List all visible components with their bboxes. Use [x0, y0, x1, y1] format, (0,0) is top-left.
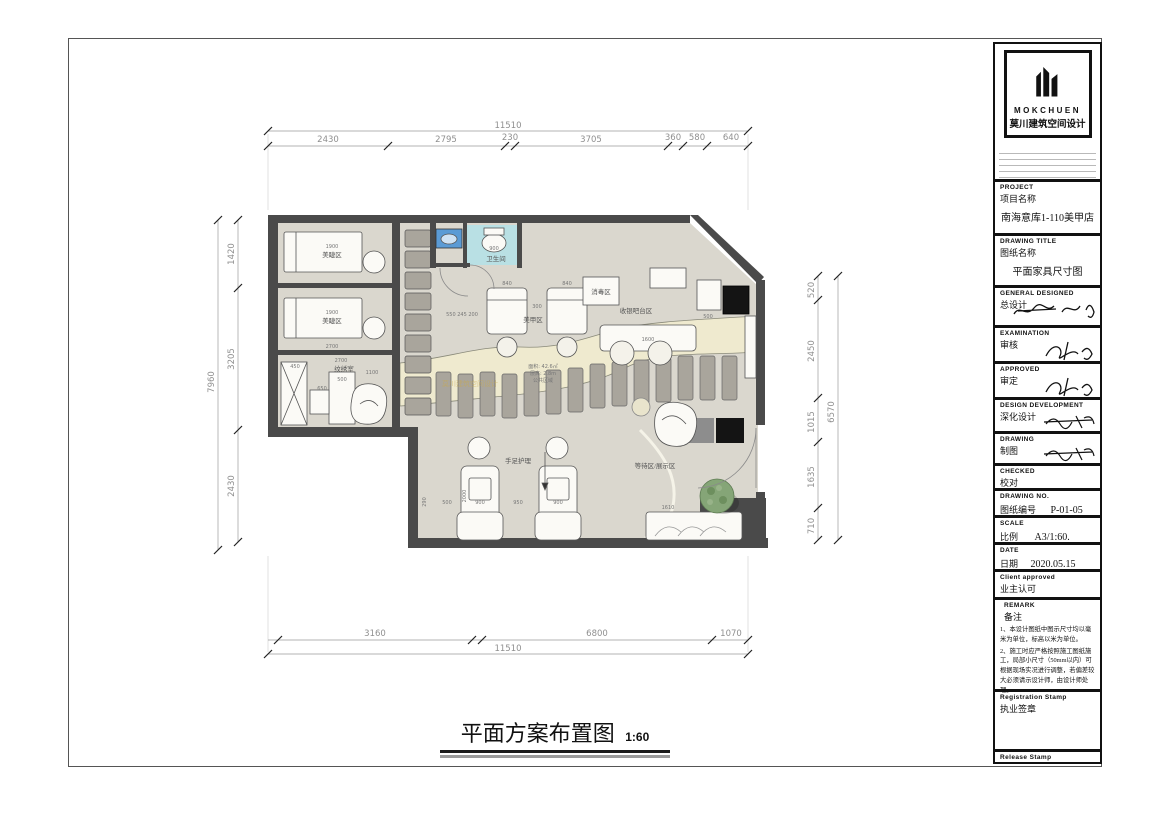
- cabinet-column: [405, 230, 431, 415]
- bed-dim: 1900: [326, 244, 339, 250]
- dim-bottom-seg: 6800: [586, 629, 608, 639]
- dim: 840: [562, 281, 572, 287]
- signature-scribble: [1010, 296, 1098, 322]
- section-title-cn: 校对: [1000, 476, 1095, 489]
- section-title-cn: 图纸名称: [1000, 246, 1095, 259]
- section-scale: SCALE 比例 A3/1:60.: [995, 518, 1100, 545]
- dim-bottom-seg: 3160: [364, 629, 386, 639]
- section-title-cn: 出图签章: [1000, 762, 1095, 764]
- dim-left-seg: 2430: [227, 475, 237, 497]
- room-label-tattoo: 纹绣室: [334, 364, 354, 373]
- section-drawing-no: DRAWING NO. 图纸编号 P-01-05: [995, 491, 1100, 518]
- section-title-en: CHECKED: [1000, 468, 1095, 475]
- dim: 900: [489, 246, 499, 252]
- section-registration-stamp: Registration Stamp 执业签章: [995, 692, 1100, 752]
- logo-brand: MOKCHUEN: [1007, 106, 1089, 115]
- dim-bottom-seg: 1070: [720, 629, 742, 639]
- room-label-bathroom: 卫生间: [486, 254, 506, 263]
- dim-top-seg: 640: [723, 133, 739, 143]
- room-label-sterilize: 消毒区: [591, 287, 611, 296]
- section-client-approved: Client approved 业主认可: [995, 572, 1100, 600]
- dim: 500: [337, 377, 347, 383]
- logo-brand-cn: 莫川建筑空间设计: [1007, 116, 1089, 130]
- watermark-text: 莫川建筑空间设计: [442, 379, 498, 388]
- dim-top-seg: 3705: [580, 135, 602, 145]
- scale-value: A3/1:60.: [1034, 532, 1069, 543]
- signature-scribble: [1038, 372, 1098, 400]
- room-label-lash1: 美睫区: [322, 250, 342, 259]
- dim: 2000: [462, 490, 468, 503]
- title-underline-dark: [440, 750, 670, 753]
- section-title-en: DESIGN DEVELOPMENT: [1000, 402, 1095, 409]
- dim-top-seg: 360: [665, 133, 681, 143]
- section-drawing: DRAWING 制图: [995, 434, 1100, 466]
- area-note: 面积: 42.6㎡: [528, 363, 557, 370]
- dim: 500: [442, 500, 452, 506]
- dim: 900: [475, 500, 485, 506]
- dim: 1610: [662, 505, 675, 511]
- dim-left-total: 7960: [207, 371, 217, 393]
- section-title-cn: 备注: [1004, 610, 1095, 623]
- plan-title: 平面方案布置图 1:60: [440, 716, 670, 758]
- room-dim: 2700: [335, 358, 348, 364]
- dim: 500: [703, 314, 713, 320]
- room-label-pedicure: 手足护理: [505, 456, 532, 465]
- dim-top-seg: 580: [689, 133, 705, 143]
- dim: 290: [422, 497, 428, 507]
- remark-note: 1、本设计图纸中图示尺寸均以毫米为单位，标高以米为单位。: [1000, 625, 1095, 645]
- dim-right-seg: 520: [807, 282, 817, 298]
- title-block: MOKCHUEN 莫川建筑空间设计 PROJECT 项目名称 南海意库1-110…: [993, 42, 1102, 764]
- section-general-designed: GENERAL DESIGNED 总设计: [995, 288, 1100, 328]
- section-title-cn: 项目名称: [1000, 192, 1095, 205]
- section-title-cn: 业主认可: [1000, 582, 1095, 595]
- dim-top-seg: 2430: [317, 135, 339, 145]
- dim-left-seg: 1420: [227, 243, 237, 265]
- plan-title-text: 平面方案布置图: [461, 716, 615, 748]
- room-label-nail: 美甲区: [523, 315, 543, 324]
- dim: 300: [532, 304, 542, 310]
- dim-right-seg: 1015: [807, 411, 817, 433]
- dim-right-seg: 710: [807, 518, 817, 534]
- logo-section: MOKCHUEN 莫川建筑空间设计: [995, 44, 1100, 142]
- stripes-section: [995, 142, 1100, 182]
- section-title-en: Client approved: [1000, 574, 1095, 581]
- room-label-cashier: 收银吧台区: [620, 306, 653, 315]
- room-dim: 2700: [326, 344, 339, 350]
- section-title-cn: 执业签章: [1000, 702, 1095, 715]
- height-note: 层高: 2.8m: [530, 370, 556, 377]
- logo-box: MOKCHUEN 莫川建筑空间设计: [1004, 50, 1092, 138]
- dim-top-seg: 2795: [435, 135, 457, 145]
- plan-title-scale: 1:60: [625, 730, 649, 744]
- section-title-en: Registration Stamp: [1000, 694, 1095, 701]
- dim-right-seg: 2450: [807, 340, 817, 362]
- drawing-sheet: 11510 2430 2795 230 3705 360 580 640 316…: [0, 0, 1150, 813]
- section-checked: CHECKED 校对: [995, 466, 1100, 491]
- dim: 840: [502, 281, 512, 287]
- floor-plan: 11510 2430 2795 230 3705 360 580 640 316…: [68, 38, 990, 738]
- drawing-number: P-01-05: [1050, 505, 1082, 516]
- section-approved: APPROVED 审定: [995, 364, 1100, 400]
- section-date: DATE 日期 2020.05.15: [995, 545, 1100, 572]
- section-project: PROJECT 项目名称 南海意库1-110美甲店: [995, 182, 1100, 236]
- dim-left-seg: 3205: [227, 348, 237, 370]
- room-label-waiting: 等待区/展示区: [635, 461, 676, 470]
- section-release-stamp: Release Stamp 出图签章: [995, 752, 1100, 764]
- bed-dim: 1900: [326, 310, 339, 316]
- section-title-cn: 比例: [1000, 530, 1018, 543]
- dim-top-total: 11510: [494, 121, 521, 131]
- dim: 950: [513, 500, 523, 506]
- section-title-en: DRAWING NO.: [1000, 493, 1095, 500]
- section-design-development: DESIGN DEVELOPMENT 深化设计: [995, 400, 1100, 434]
- section-examination: EXAMINATION 审核: [995, 328, 1100, 364]
- date-value: 2020.05.15: [1030, 559, 1075, 570]
- section-title-en: DATE: [1000, 547, 1095, 554]
- dim-right-seg: 1635: [807, 466, 817, 488]
- dim: 1600: [642, 337, 655, 343]
- section-title-en: SCALE: [1000, 520, 1095, 527]
- signature-scribble: [1042, 444, 1098, 464]
- dim-top-seg: 230: [502, 133, 518, 143]
- dim: 1100: [366, 370, 379, 376]
- section-title-cn: 日期: [1000, 557, 1018, 570]
- dim: 550 245 200: [446, 312, 478, 318]
- section-title-en: DRAWING: [1000, 436, 1095, 443]
- title-underline-gray: [440, 755, 670, 758]
- section-title-en: REMARK: [1004, 602, 1095, 609]
- dim: 650: [317, 386, 327, 392]
- section-title-en: DRAWING TITLE: [1000, 238, 1095, 245]
- section-drawing-title: DRAWING TITLE 图纸名称 平面家具尺寸图: [995, 236, 1100, 288]
- signature-scribble: [1042, 412, 1098, 432]
- signature-scribble: [1038, 336, 1098, 364]
- buildings-icon: [1028, 61, 1068, 99]
- zone-note: 公共区域: [533, 377, 553, 384]
- section-remark: REMARK 备注 1、本设计图纸中图示尺寸均以毫米为单位，标高以米为单位。 2…: [995, 600, 1100, 692]
- drawing-title-value: 平面家具尺寸图: [1000, 263, 1095, 278]
- section-title-en: Release Stamp: [1000, 754, 1095, 761]
- dim: 450: [290, 364, 300, 370]
- remark-note: 2、施工时应严格按照施工图纸施工，局部小尺寸（50mm以内）可根据现场实况进行调…: [1000, 647, 1095, 696]
- dim: 900: [553, 500, 563, 506]
- dim-bottom-total: 11510: [494, 644, 521, 654]
- section-title-cn: 图纸编号: [1000, 503, 1036, 516]
- section-title-en: PROJECT: [1000, 184, 1095, 191]
- room-label-lash2: 美睫区: [322, 316, 342, 325]
- dim-right-total: 6570: [827, 401, 837, 423]
- project-name: 南海意库1-110美甲店: [1000, 209, 1095, 224]
